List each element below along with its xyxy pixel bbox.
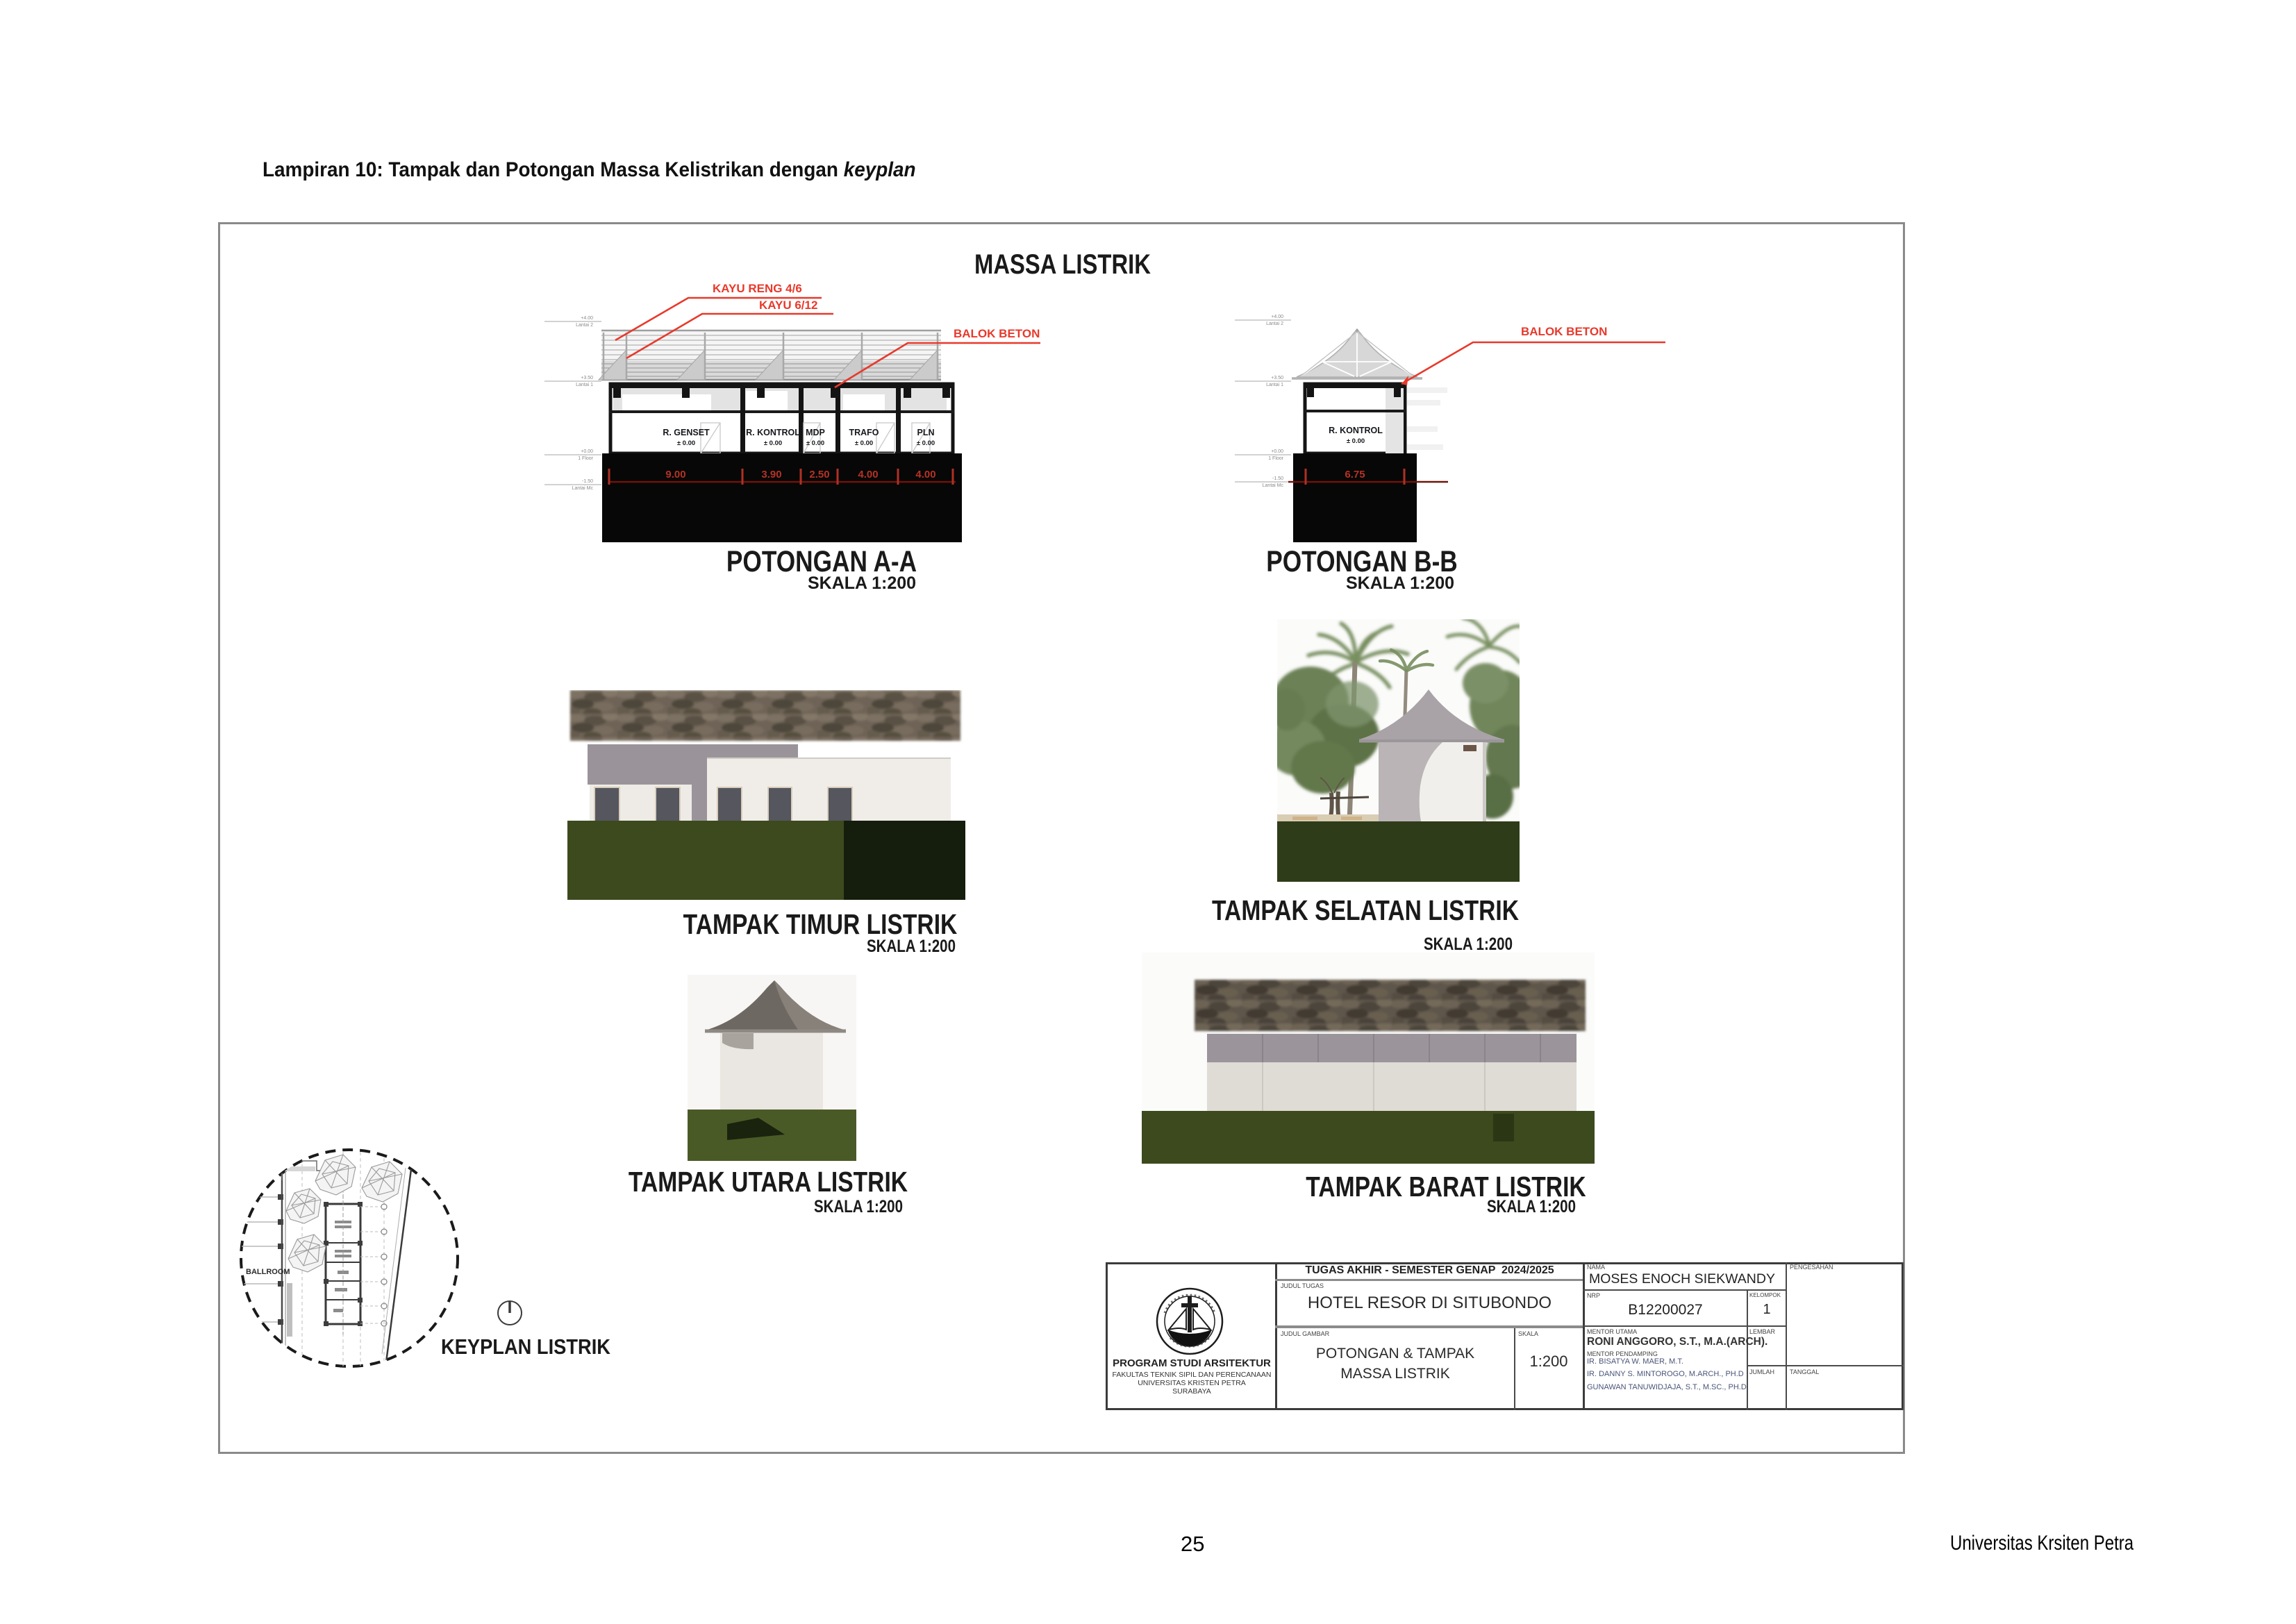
- svg-text:+4.00: +4.00: [581, 316, 593, 321]
- svg-text:+4.00: +4.00: [1271, 315, 1283, 319]
- svg-text:+3.50: +3.50: [581, 376, 593, 380]
- svg-text:+0.00: +0.00: [1271, 449, 1283, 454]
- svg-text:+0.00: +0.00: [581, 449, 593, 454]
- svg-text:Lantai 1: Lantai 1: [1266, 383, 1283, 387]
- svg-text:Lantai 2: Lantai 2: [1266, 321, 1283, 326]
- svg-text:+3.50: +3.50: [1271, 376, 1283, 380]
- svg-text:1 Floor: 1 Floor: [578, 456, 593, 461]
- svg-text:2.50: 2.50: [809, 469, 829, 480]
- svg-text:-1.50: -1.50: [1272, 476, 1283, 481]
- svg-text:Lantai Mc: Lantai Mc: [1263, 483, 1284, 488]
- svg-text:4.00: 4.00: [858, 469, 878, 480]
- svg-text:3.90: 3.90: [761, 469, 781, 480]
- svg-text:-1.50: -1.50: [582, 479, 593, 484]
- svg-text:Lantai 1: Lantai 1: [576, 383, 593, 387]
- svg-text:Lantai 2: Lantai 2: [576, 323, 593, 328]
- svg-text:9.00: 9.00: [665, 469, 685, 480]
- svg-text:4.00: 4.00: [915, 469, 935, 480]
- svg-text:1 Floor: 1 Floor: [1268, 456, 1283, 461]
- svg-text:Lantai Mc: Lantai Mc: [572, 486, 594, 491]
- svg-text:6.75: 6.75: [1345, 469, 1365, 480]
- svg-text:BALLROOM: BALLROOM: [246, 1268, 290, 1276]
